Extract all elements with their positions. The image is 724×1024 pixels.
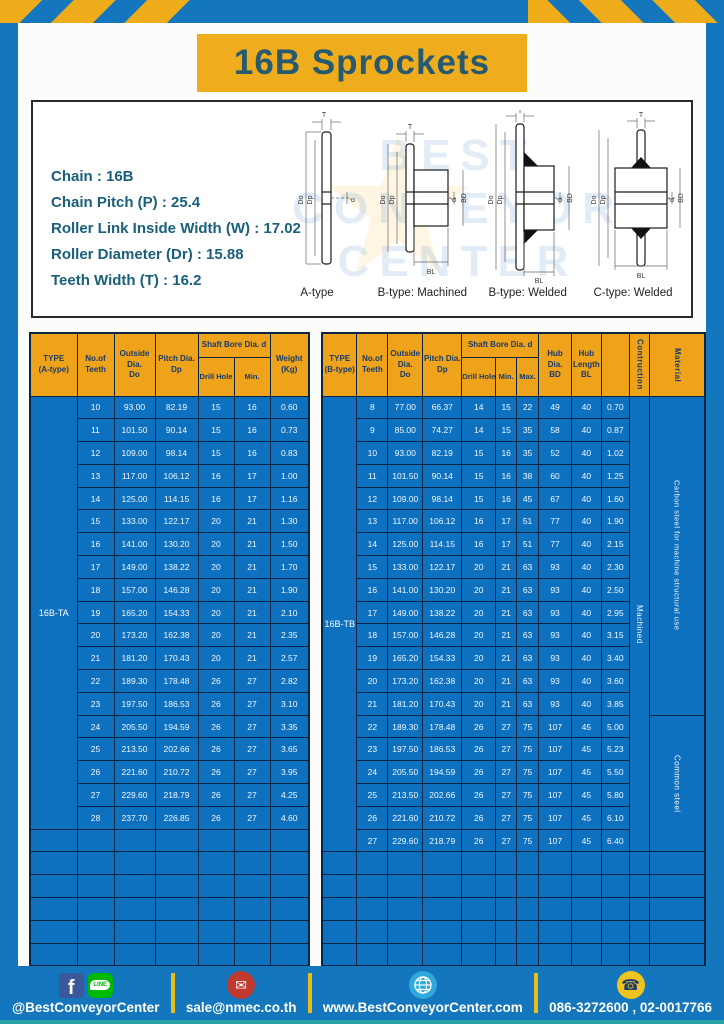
table-cell: 202.66 [423,784,462,807]
table-cell: 85.00 [388,419,423,442]
sprocket-table-b-type: TYPE (B-type) No.of Teeth Outside Dia. D… [321,332,706,967]
table-cell: 10 [357,442,388,465]
col-header-hub-length: Hub Length BL [572,333,602,396]
empty-cell [357,875,388,898]
type-cell-16b-ta: 16B-TA [30,396,77,829]
empty-cell [423,898,462,921]
table-cell: 21 [234,510,270,533]
table-cell: 130.20 [155,533,198,556]
email-icon[interactable]: ✉ [227,971,255,999]
table-cell: 14 [77,487,114,510]
empty-cell [155,920,198,943]
table-cell: 15 [462,442,496,465]
table-cell: 229.60 [114,784,155,807]
table-cell: 106.12 [423,510,462,533]
bottom-accent-strip [0,1020,724,1024]
table-cell: 106.12 [155,464,198,487]
col-header-weight [601,333,629,396]
table-cell: 114.15 [155,487,198,510]
empty-cell [539,852,572,875]
col-header-shaft-bore: Shaft Bore Dia. d [462,333,539,357]
empty-cell [77,875,114,898]
table-cell: 20 [357,670,388,693]
table-cell: 20 [198,601,234,624]
table-cell: 202.66 [155,738,198,761]
diagram-caption: C-type: Welded [593,287,672,299]
dim-d: d [350,198,357,202]
table-cell: 16 [462,510,496,533]
table-cell: 21 [496,670,517,693]
table-cell: 21 [234,556,270,579]
table-b-wrapper: TYPE (B-type) No.of Teeth Outside Dia. D… [321,332,706,967]
table-cell: 149.00 [388,601,423,624]
empty-cell [649,898,705,921]
table-cell: 75 [517,738,539,761]
table-cell: 3.65 [270,738,309,761]
empty-cell [462,852,496,875]
table-cell: 27 [234,670,270,693]
table-cell: 101.50 [388,464,423,487]
table-cell: 16 [234,419,270,442]
table-cell: 237.70 [114,806,155,829]
table-cell: 15 [198,442,234,465]
page-title: 16B Sprockets [234,43,490,83]
table-cell: 1.02 [601,442,629,465]
table-cell: 189.30 [114,670,155,693]
table-cell: 189.30 [388,715,423,738]
empty-cell [30,943,77,966]
empty-cell [462,875,496,898]
table-cell: 17 [77,556,114,579]
table-cell: 25 [357,784,388,807]
dim-d: d [557,198,564,202]
table-cell: 107 [539,738,572,761]
diagram-caption: B-type: Welded [488,287,566,299]
table-cell: 75 [517,761,539,784]
dim-do: Do [380,195,387,204]
table-cell: 1.60 [601,487,629,510]
col-header-type: TYPE (A-type) [30,333,77,396]
dim-bd: BD [567,193,574,203]
table-cell: 75 [517,829,539,852]
table-cell: 93 [539,578,572,601]
table-cell: 2.50 [601,578,629,601]
empty-cell [539,898,572,921]
table-cell: 3.35 [270,715,309,738]
table-cell: 21 [496,556,517,579]
empty-cell [539,943,572,966]
empty-cell [601,852,629,875]
table-cell: 16 [234,396,270,419]
table-cell: 26 [198,670,234,693]
hazard-stripes-right [528,0,724,23]
col-header-drill-hole: Drill Hole [462,357,496,396]
table-cell: 20 [198,624,234,647]
table-cell: 63 [517,601,539,624]
diagram-b-type-welded: T Do Dp d BD BL B-type: Weld [476,110,580,312]
diagram-a-type: T Do Dp d A-type [265,110,369,312]
table-cell: 125.00 [388,533,423,556]
empty-row [322,898,705,921]
table-cell: 165.20 [388,647,423,670]
table-cell: 109.00 [388,487,423,510]
empty-cell [155,852,198,875]
table-cell: 40 [572,464,602,487]
table-cell: 23 [357,738,388,761]
table-cell: 181.20 [388,692,423,715]
table-cell: 109.00 [114,442,155,465]
table-cell: 3.40 [601,647,629,670]
table-cell: 13 [77,464,114,487]
table-cell: 12 [357,487,388,510]
table-cell: 40 [572,533,602,556]
table-cell: 107 [539,715,572,738]
table-cell: 25 [77,738,114,761]
table-cell: 146.28 [155,578,198,601]
table-cell: 170.43 [155,647,198,670]
chain-specs: Chain : 16B Chain Pitch (P) : 25.4 Rolle… [51,164,301,294]
col-header-min: Min. [496,357,517,396]
table-cell: 170.43 [423,692,462,715]
table-cell: 75 [517,784,539,807]
empty-cell [30,920,77,943]
table-cell: 2.10 [270,601,309,624]
table-cell: 162.38 [155,624,198,647]
table-cell: 5.00 [601,715,629,738]
table-cell: 26 [462,715,496,738]
table-cell: 2.95 [601,601,629,624]
empty-cell [155,943,198,966]
table-cell: 26 [357,806,388,829]
facebook-letter: f [68,978,75,998]
table-cell: 15 [77,510,114,533]
empty-cell [423,943,462,966]
table-cell: 26 [462,738,496,761]
table-cell: 63 [517,647,539,670]
dim-dp: Dp [389,195,396,204]
table-cell: 3.95 [270,761,309,784]
table-cell: 20 [462,692,496,715]
table-cell: 63 [517,692,539,715]
social-handle[interactable]: @BestConveyorCenter [12,1000,159,1015]
empty-cell [114,852,155,875]
table-cell: 58 [539,419,572,442]
table-cell: 63 [517,624,539,647]
table-cell: 186.53 [423,738,462,761]
col-header-teeth: No.of Teeth [357,333,388,396]
empty-cell [270,943,309,966]
footer-email-group[interactable]: ✉ sale@nmec.co.th [186,971,297,1015]
empty-cell [77,898,114,921]
empty-cell [357,898,388,921]
table-cell: 20 [198,647,234,670]
col-header-shaft-bore: Shaft Bore Dia. d [198,333,270,357]
facebook-icon[interactable]: f [59,973,84,998]
empty-cell [155,829,198,852]
dim-t: T [518,110,523,115]
empty-cell [601,920,629,943]
empty-row [30,875,309,898]
table-cell: 27 [234,761,270,784]
table-cell: 181.20 [114,647,155,670]
table-cell: 66.37 [423,396,462,419]
empty-cell [462,920,496,943]
empty-cell [30,875,77,898]
table-cell: 1.50 [270,533,309,556]
col-header-hub-dia: Hub Dia. BD [539,333,572,396]
empty-cell [114,943,155,966]
diagram-c-type-welded: T Do Dp d BD BL C-type: Weld [581,110,685,312]
table-cell: 63 [517,670,539,693]
diagram-caption: B-type: Machined [378,287,468,299]
table-cell: 221.60 [114,761,155,784]
empty-cell [77,829,114,852]
empty-cell [234,943,270,966]
empty-row [30,920,309,943]
empty-cell [198,875,234,898]
col-header-outside-dia: Outside Dia. Do [114,333,155,396]
empty-cell [601,898,629,921]
spec-line: Chain Pitch (P) : 25.4 [51,190,301,216]
table-cell: 5.23 [601,738,629,761]
table-cell: 26 [198,715,234,738]
empty-row [322,852,705,875]
table-cell: 15 [198,419,234,442]
empty-cell [423,852,462,875]
table-cell: 20 [462,578,496,601]
table-cell: 221.60 [388,806,423,829]
table-cell: 6.10 [601,806,629,829]
table-cell: 21 [496,647,517,670]
empty-row [322,875,705,898]
table-cell: 20 [462,670,496,693]
table-cell: 23 [77,692,114,715]
dim-bl: BL [534,278,543,285]
line-app-icon[interactable]: LINE [88,973,113,998]
empty-cell [572,898,602,921]
empty-cell [649,920,705,943]
dim-t: T [322,112,327,119]
table-cell: 9 [357,419,388,442]
table-cell: 122.17 [155,510,198,533]
table-cell: 226.85 [155,806,198,829]
email-address[interactable]: sale@nmec.co.th [186,1000,297,1015]
table-cell: 40 [572,624,602,647]
empty-cell [198,898,234,921]
table-cell: 19 [77,601,114,624]
table-cell: 1.70 [270,556,309,579]
table-cell: 20 [462,624,496,647]
table-cell: 2.82 [270,670,309,693]
table-cell: 40 [572,578,602,601]
table-cell: 205.50 [388,761,423,784]
phone-numbers[interactable]: 086-3272600 , 02-0017766 [549,1000,712,1015]
footer-website-group[interactable]: www.BestConveyorCenter.com [323,971,523,1015]
dim-bd: BD [678,193,685,203]
table-cell: 197.50 [388,738,423,761]
table-cell: 15 [496,396,517,419]
table-cell: 3.60 [601,670,629,693]
table-cell: 77 [539,510,572,533]
table-cell: 178.48 [155,670,198,693]
dim-dp: Dp [600,195,607,204]
table-cell: 16 [198,464,234,487]
table-cell: 10 [77,396,114,419]
table-cell: 93 [539,556,572,579]
spec-line: Chain : 16B [51,164,301,190]
table-cell: 21 [496,601,517,624]
table-cell: 11 [77,419,114,442]
table-cell: 178.48 [423,715,462,738]
empty-row [30,852,309,875]
table-cell: 27 [496,829,517,852]
table-cell: 21 [234,624,270,647]
phone-icon[interactable]: ☎ [617,971,645,999]
empty-cell [629,875,649,898]
table-cell: 141.00 [388,578,423,601]
table-cell: 27 [357,829,388,852]
empty-cell [496,898,517,921]
table-cell: 3.15 [601,624,629,647]
empty-cell [357,943,388,966]
globe-icon[interactable] [409,971,437,999]
table-cell: 75 [517,715,539,738]
material-cell-common-steel: Common steel [649,715,705,852]
empty-cell [198,829,234,852]
hazard-stripes-left [0,0,196,23]
empty-cell [539,920,572,943]
table-cell: 16 [462,533,496,556]
table-cell: 117.00 [388,510,423,533]
empty-cell [270,829,309,852]
col-header-outside-dia: Outside Dia. Do [388,333,423,396]
dim-do: Do [298,195,305,204]
empty-cell [601,943,629,966]
table-cell: 51 [517,510,539,533]
table-cell: 90.14 [423,464,462,487]
table-cell: 15 [462,487,496,510]
empty-cell [114,875,155,898]
table-cell: 67 [539,487,572,510]
table-cell: 20 [462,601,496,624]
table-cell: 27 [234,692,270,715]
empty-cell [234,898,270,921]
table-cell: 205.50 [114,715,155,738]
table-cell: 21 [496,578,517,601]
table-cell: 27 [234,806,270,829]
table-cell: 40 [572,510,602,533]
table-cell: 93.00 [114,396,155,419]
table-cell: 218.79 [423,829,462,852]
table-cell: 17 [496,533,517,556]
empty-cell [517,920,539,943]
empty-cell [198,943,234,966]
footer-social-group[interactable]: f LINE @BestConveyorCenter [12,971,159,1015]
table-cell: 90.14 [155,419,198,442]
table-cell: 133.00 [114,510,155,533]
type-cell-16b-tb: 16B-TB [322,396,357,852]
empty-cell [234,852,270,875]
table-cell: 45 [572,784,602,807]
empty-cell [357,852,388,875]
table-cell: 20 [462,647,496,670]
table-cell: 197.50 [114,692,155,715]
empty-cell [649,875,705,898]
empty-cell [601,875,629,898]
empty-cell [322,875,357,898]
empty-cell [270,852,309,875]
table-cell: 117.00 [114,464,155,487]
empty-row [30,829,309,852]
empty-cell [423,920,462,943]
dim-do: Do [591,195,598,204]
table-cell: 17 [234,464,270,487]
construction-cell: Machined [629,396,649,852]
empty-cell [155,898,198,921]
table-cell: 77 [539,533,572,556]
table-cell: 5.50 [601,761,629,784]
table-cell: 14 [462,396,496,419]
empty-cell [629,852,649,875]
table-cell: 27 [496,806,517,829]
table-cell: 82.19 [423,442,462,465]
diagram-section: BEST CONVEYOR CENTER Chain : 16B Chain P… [31,100,693,318]
table-cell: 38 [517,464,539,487]
table-cell: 63 [517,556,539,579]
empty-cell [30,898,77,921]
table-cell: 20 [198,578,234,601]
table-cell: 16 [198,487,234,510]
table-cell: 1.90 [270,578,309,601]
dim-bd: BD [461,193,468,203]
table-cell: 27 [234,738,270,761]
col-header-pitch-dia: Pitch Dia. Dp [423,333,462,396]
footer-phone-group[interactable]: ☎ 086-3272600 , 02-0017766 [549,971,712,1015]
table-cell: 20 [198,533,234,556]
table-cell: 0.87 [601,419,629,442]
table-cell: 141.00 [114,533,155,556]
table-cell: 4.60 [270,806,309,829]
empty-cell [388,920,423,943]
footer-divider [171,973,175,1013]
col-header-teeth: No.of Teeth [77,333,114,396]
table-cell: 154.33 [155,601,198,624]
table-cell: 218.79 [155,784,198,807]
table-cell: 2.30 [601,556,629,579]
title-banner: 16B Sprockets [197,34,527,92]
table-cell: 1.16 [270,487,309,510]
table-cell: 26 [462,806,496,829]
table-cell: 27 [496,761,517,784]
website-url[interactable]: www.BestConveyorCenter.com [323,1000,523,1015]
table-cell: 18 [357,624,388,647]
table-cell: 16 [496,442,517,465]
table-cell: 93 [539,601,572,624]
col-header-max: Max. [517,357,539,396]
table-cell: 1.00 [270,464,309,487]
table-cell: 16 [77,533,114,556]
table-cell: 1.25 [601,464,629,487]
table-cell: 15 [357,556,388,579]
empty-cell [114,920,155,943]
table-cell: 21 [496,624,517,647]
table-cell: 107 [539,806,572,829]
empty-cell [572,875,602,898]
table-cell: 4.25 [270,784,309,807]
empty-cell [322,852,357,875]
table-cell: 52 [539,442,572,465]
table-cell: 2.57 [270,647,309,670]
